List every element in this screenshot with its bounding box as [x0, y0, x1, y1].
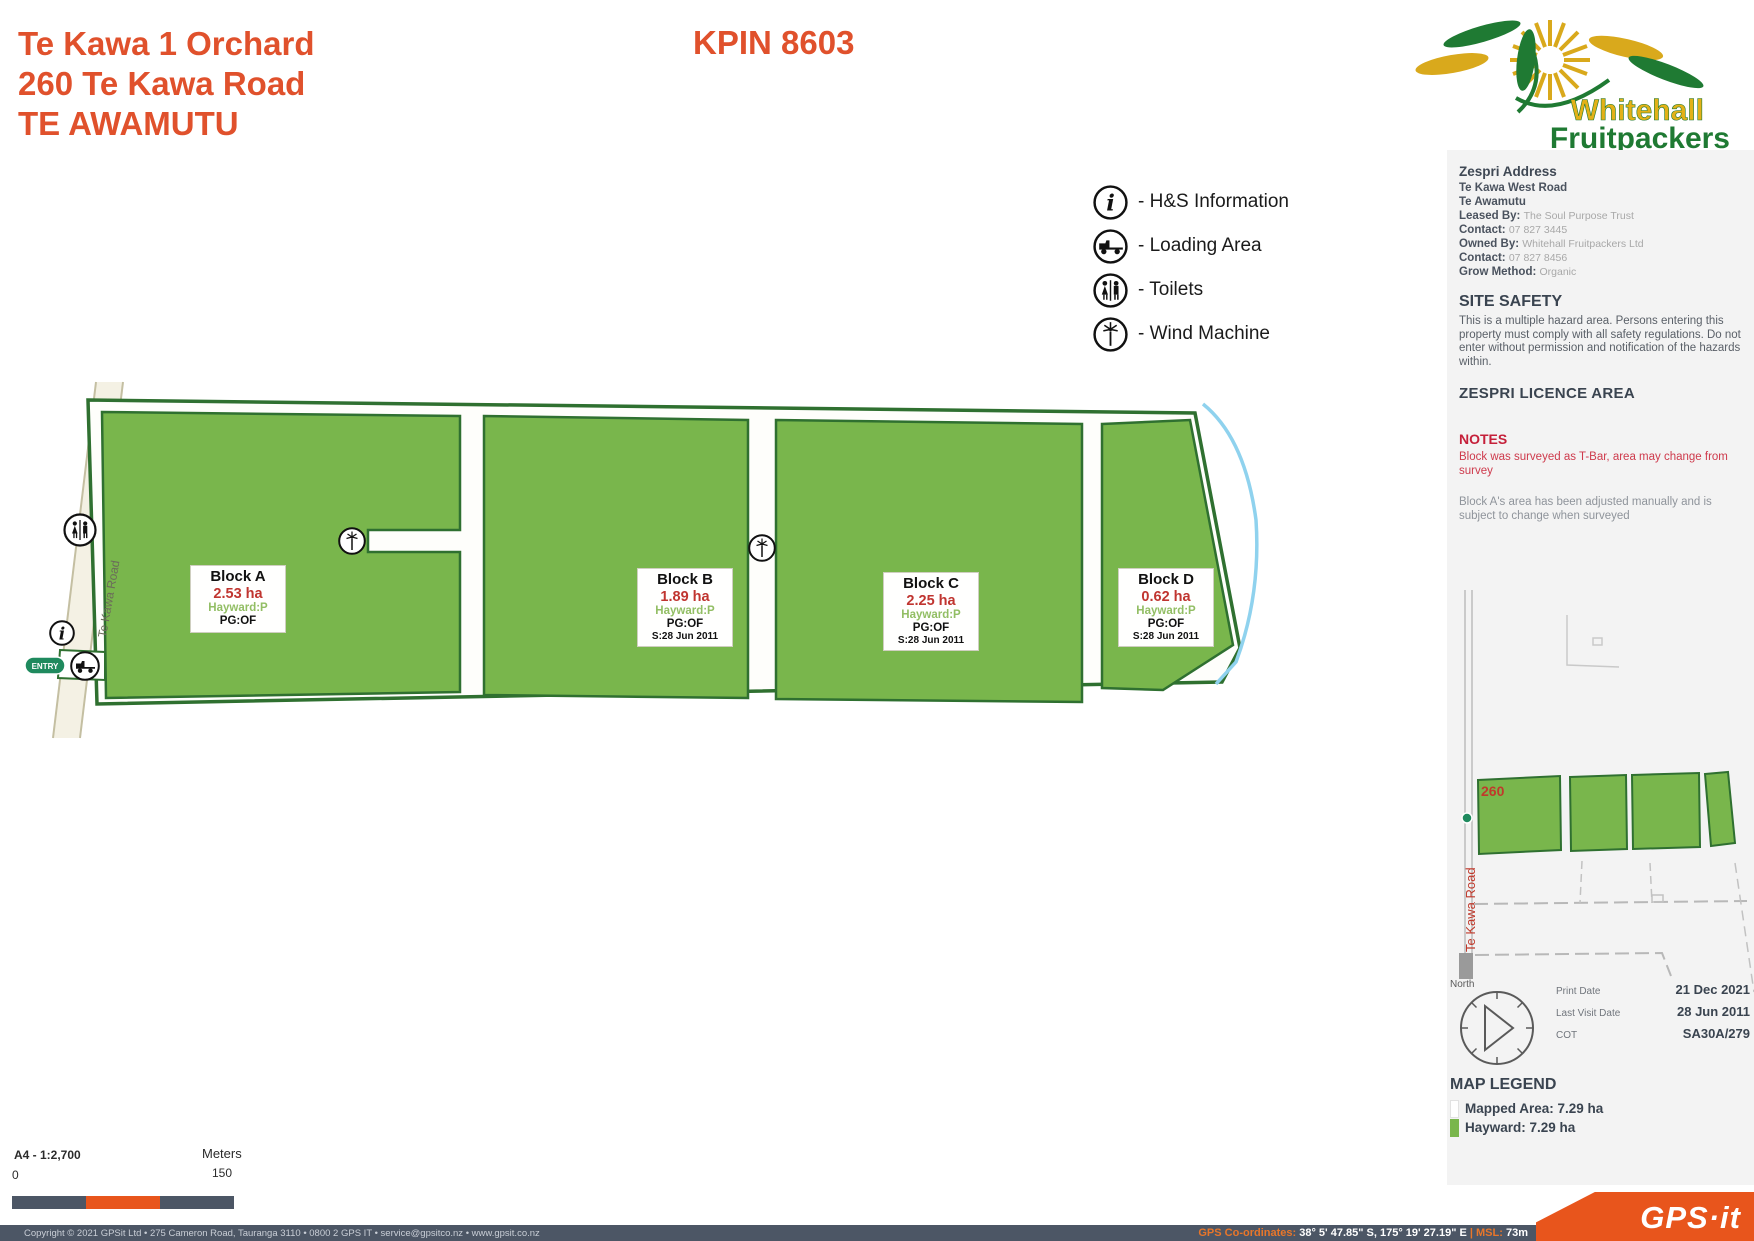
minimap-street-number: 260 — [1481, 783, 1505, 799]
minimap-entry-dot — [1462, 813, 1472, 823]
legend-label: - Wind Machine — [1138, 323, 1270, 345]
legend-label: - H&S Information — [1138, 191, 1289, 213]
minimap-road — [1580, 861, 1582, 903]
row-value: 21 Dec 2021 — [1676, 982, 1750, 997]
grow-method-row: Grow Method: Organic — [1459, 266, 1745, 279]
minimap-road-stub — [1459, 953, 1473, 979]
orchard-name: Te Kawa 1 Orchard — [18, 24, 315, 64]
svg-text:i: i — [1106, 190, 1115, 216]
note-block-a: Block A's area has been adjusted manuall… — [1459, 496, 1745, 523]
hayward-row: Hayward: 7.29 ha — [1450, 1118, 1603, 1137]
minimap-road — [1475, 953, 1671, 976]
block-c-polygon — [776, 420, 1082, 702]
kpin-label: KPIN 8603 — [693, 24, 854, 62]
gpsit-logo-text: GPS·it — [1640, 1200, 1741, 1236]
gps-value: 38° 5' 47.85" S, 175° 19' 27.19" E — [1299, 1227, 1467, 1239]
row-label: Print Date — [1556, 986, 1600, 997]
row-value: Organic — [1540, 266, 1577, 278]
svg-text:i: i — [59, 625, 65, 645]
toilets-icon — [65, 515, 96, 546]
legend-row-wind: - Wind Machine — [1092, 312, 1289, 356]
truck-icon — [71, 652, 99, 680]
block-area: 1.89 ha — [643, 589, 727, 605]
row-value: The Soul Purpose Trust — [1524, 210, 1634, 222]
row-key: Leased By: — [1459, 210, 1520, 222]
contact-row: Contact: 07 827 3445 — [1459, 224, 1745, 237]
whitehall-fruitpackers-logo: Whitehall Fruitpackers — [1404, 2, 1754, 152]
block-a-label: Block A 2.53 ha Hayward:P PG:OF — [190, 565, 286, 633]
block-b-label: Block B 1.89 ha Hayward:P PG:OF S:28 Jun… — [637, 568, 733, 647]
block-c-label: Block C 2.25 ha Hayward:P PG:OF S:28 Jun… — [883, 572, 979, 651]
row-key: Owned By: — [1459, 238, 1519, 250]
toilets-icon — [1092, 272, 1129, 309]
scale-segment — [12, 1196, 86, 1209]
row-value: Whitehall Fruitpackers Ltd — [1522, 238, 1643, 250]
scale-max-label: 150 — [212, 1166, 232, 1180]
block-area: 0.62 ha — [1124, 589, 1208, 605]
orchard-town: TE AWAMUTU — [18, 104, 315, 144]
orchard-title: Te Kawa 1 Orchard 260 Te Kawa Road TE AW… — [18, 24, 315, 144]
owned-by-row: Owned By: Whitehall Fruitpackers Ltd — [1459, 238, 1745, 251]
minimap-parcels — [1478, 772, 1735, 854]
logo-word-fruitpackers: Fruitpackers — [1550, 122, 1730, 152]
legend-row-loading: - Loading Area — [1092, 224, 1289, 268]
row-value: SA30A/279 — [1683, 1026, 1750, 1041]
block-pg: PG:OF — [196, 615, 280, 628]
last-visit-row: Last Visit Date 28 Jun 2011 — [1556, 1004, 1750, 1026]
block-name: Block C — [889, 576, 973, 593]
notes-title: NOTES — [1459, 431, 1745, 447]
block-area: 2.25 ha — [889, 593, 973, 609]
block-variety: Hayward:P — [1124, 605, 1208, 618]
print-info: Print Date 21 Dec 2021 Last Visit Date 2… — [1556, 982, 1750, 1048]
orchard-map: Te Kawa Road i ENTRY — [0, 380, 1300, 740]
hayward-swatch — [1450, 1119, 1459, 1137]
block-pg: PG:OF — [889, 622, 973, 635]
orchard-map-canvas: Te Kawa Road i ENTRY — [0, 380, 1300, 740]
leased-by-row: Leased By: The Soul Purpose Trust — [1459, 210, 1745, 223]
zespri-licence-title: ZESPRI LICENCE AREA — [1459, 385, 1745, 402]
wind-machine-icon — [1092, 316, 1129, 353]
block-d-label: Block D 0.62 ha Hayward:P PG:OF S:28 Jun… — [1118, 568, 1214, 647]
block-pg: PG:OF — [1124, 618, 1208, 631]
block-pg: PG:OF — [643, 618, 727, 631]
block-variety: Hayward:P — [643, 605, 727, 618]
row-value: 07 827 3445 — [1509, 224, 1567, 236]
truck-icon — [1092, 228, 1129, 265]
scale-segment — [160, 1196, 234, 1209]
block-name: Block B — [643, 572, 727, 589]
cot-row: COT SA30A/279 — [1556, 1026, 1750, 1048]
north-compass — [1461, 992, 1533, 1064]
orchard-street: 260 Te Kawa Road — [18, 64, 315, 104]
block-surveyed: S:28 Jun 2011 — [643, 631, 727, 642]
scale-unit-label: Meters — [202, 1146, 242, 1161]
scale-zero-label: 0 — [12, 1168, 19, 1182]
mapped-area-label: Mapped Area: 7.29 ha — [1465, 1101, 1603, 1116]
icon-legend: i - H&S Information - Loading Area — [1092, 180, 1289, 356]
block-surveyed: S:28 Jun 2011 — [889, 635, 973, 646]
row-value: 28 Jun 2011 — [1677, 1004, 1750, 1019]
wind-machine-icon — [339, 528, 365, 554]
row-key: Contact: — [1459, 252, 1506, 264]
info-icon: i — [1092, 184, 1129, 221]
site-safety-title: SITE SAFETY — [1459, 293, 1745, 311]
msl-label: | MSL: — [1470, 1227, 1503, 1239]
mapped-area-row: Mapped Area: 7.29 ha — [1450, 1099, 1603, 1118]
map-legend: MAP LEGEND Mapped Area: 7.29 ha Hayward:… — [1450, 1076, 1603, 1137]
row-key: Contact: — [1459, 224, 1506, 236]
mapped-area-swatch — [1450, 1100, 1459, 1118]
minimap-road — [1735, 863, 1754, 992]
print-date-row: Print Date 21 Dec 2021 — [1556, 982, 1750, 1004]
row-label: COT — [1556, 1030, 1577, 1041]
scale-format-label: A4 - 1:2,700 — [14, 1148, 81, 1162]
gpsit-logo-badge: GPS·it — [1536, 1192, 1754, 1241]
info-icon: i — [50, 621, 74, 645]
legend-row-info: i - H&S Information — [1092, 180, 1289, 224]
msl-value: 73m — [1506, 1227, 1528, 1239]
legend-label: - Loading Area — [1138, 235, 1262, 257]
minimap-building — [1593, 638, 1602, 645]
row-label: Last Visit Date — [1556, 1008, 1620, 1019]
legend-row-toilets: - Toilets — [1092, 268, 1289, 312]
north-label: North — [1450, 979, 1474, 990]
minimap-road — [1474, 901, 1747, 904]
block-d-polygon — [1102, 420, 1233, 690]
hayward-label: Hayward: 7.29 ha — [1465, 1120, 1575, 1135]
block-name: Block D — [1124, 572, 1208, 589]
scale-bar — [12, 1196, 234, 1209]
block-b-polygon — [484, 416, 748, 698]
entry-label: ENTRY — [32, 662, 59, 671]
orchard-map-page: Te Kawa 1 Orchard 260 Te Kawa Road TE AW… — [0, 0, 1754, 1241]
block-area: 2.53 ha — [196, 586, 280, 602]
gps-label: GPS Co-ordinates: — [1198, 1227, 1296, 1239]
minimap-road-label: Te Kawa Road — [1463, 867, 1478, 952]
block-surveyed: S:28 Jun 2011 — [1124, 631, 1208, 642]
address-town: Te Awamutu — [1459, 196, 1745, 210]
block-name: Block A — [196, 569, 280, 586]
contact-row: Contact: 07 827 8456 — [1459, 252, 1745, 265]
gps-coordinates: GPS Co-ordinates: 38° 5' 47.85" S, 175° … — [1198, 1227, 1528, 1239]
block-a-polygon — [102, 412, 460, 698]
zespri-address-title: Zespri Address — [1459, 164, 1745, 179]
address-road: Te Kawa West Road — [1459, 182, 1745, 196]
legend-label: - Toilets — [1138, 279, 1203, 301]
scale-segment — [86, 1196, 160, 1209]
entry-badge: ENTRY — [25, 657, 65, 674]
copyright-text: Copyright © 2021 GPSit Ltd • 275 Cameron… — [24, 1228, 540, 1239]
map-legend-title: MAP LEGEND — [1450, 1076, 1603, 1094]
row-key: Grow Method: — [1459, 266, 1536, 278]
row-value: 07 827 8456 — [1509, 252, 1567, 264]
wind-machine-icon — [749, 535, 775, 561]
note-survey: Block was surveyed as T-Bar, area may ch… — [1459, 451, 1745, 478]
site-safety-text: This is a multiple hazard area. Persons … — [1459, 315, 1741, 369]
block-variety: Hayward:P — [889, 609, 973, 622]
block-variety: Hayward:P — [196, 602, 280, 615]
